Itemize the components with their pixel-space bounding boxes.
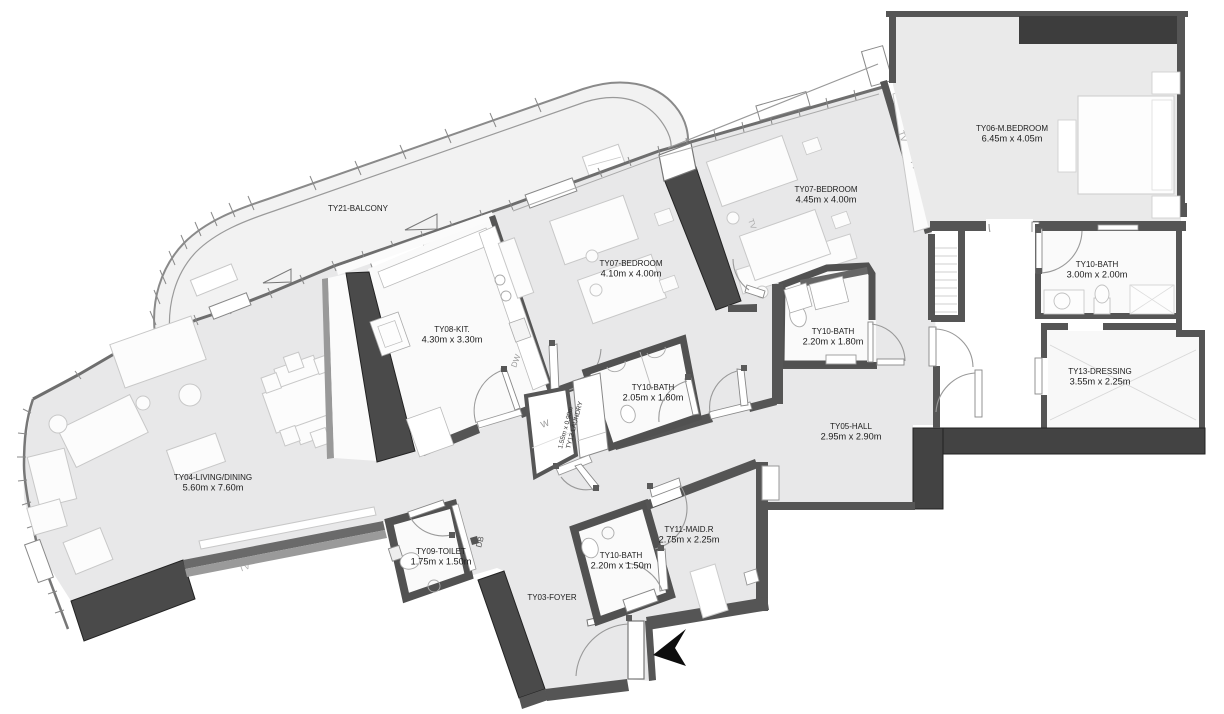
svg-text:3.00m x 2.00m: 3.00m x 2.00m [1067,270,1128,280]
svg-text:TY06-M.BEDROOM: TY06-M.BEDROOM [976,124,1048,133]
svg-text:TY04-LIVING/DINING: TY04-LIVING/DINING [174,473,252,482]
svg-text:TY10-BATH: TY10-BATH [1076,260,1119,269]
svg-text:TY13-DRESSING: TY13-DRESSING [1068,367,1132,376]
svg-text:5.60m x 7.60m: 5.60m x 7.60m [183,483,244,493]
svg-text:2.75m x 2.25m: 2.75m x 2.25m [659,535,720,545]
svg-text:TY11-MAID.R: TY11-MAID.R [664,525,713,534]
svg-text:4.30m x 3.30m: 4.30m x 3.30m [422,335,483,345]
svg-text:2.20m x 1.50m: 2.20m x 1.50m [591,561,652,571]
svg-text:TY09-TOILET: TY09-TOILET [416,547,466,556]
svg-text:4.10m x 4.00m: 4.10m x 4.00m [601,269,662,279]
svg-text:TY10-BATH: TY10-BATH [600,551,643,560]
svg-text:2.20m x 1.80m: 2.20m x 1.80m [803,337,864,347]
svg-text:TY10-BATH: TY10-BATH [812,327,855,336]
svg-text:TY21-BALCONY: TY21-BALCONY [328,204,389,213]
svg-text:4.45m x 4.00m: 4.45m x 4.00m [796,195,857,205]
svg-text:TY08-KIT.: TY08-KIT. [434,325,470,334]
svg-text:2.05m x 1.80m: 2.05m x 1.80m [623,393,684,403]
svg-text:2.95m x 2.90m: 2.95m x 2.90m [821,432,882,442]
svg-text:TY03-FOYER: TY03-FOYER [527,593,577,602]
svg-text:1.75m x 1.50m: 1.75m x 1.50m [411,557,472,567]
svg-text:TY10-BATH: TY10-BATH [632,383,675,392]
svg-text:TY07-BEDROOM: TY07-BEDROOM [599,259,662,268]
svg-text:TY07-BEDROOM: TY07-BEDROOM [794,185,857,194]
svg-text:3.55m x 2.25m: 3.55m x 2.25m [1070,377,1131,387]
svg-text:TY05-HALL: TY05-HALL [830,422,872,431]
svg-text:6.45m x 4.05m: 6.45m x 4.05m [982,134,1043,144]
